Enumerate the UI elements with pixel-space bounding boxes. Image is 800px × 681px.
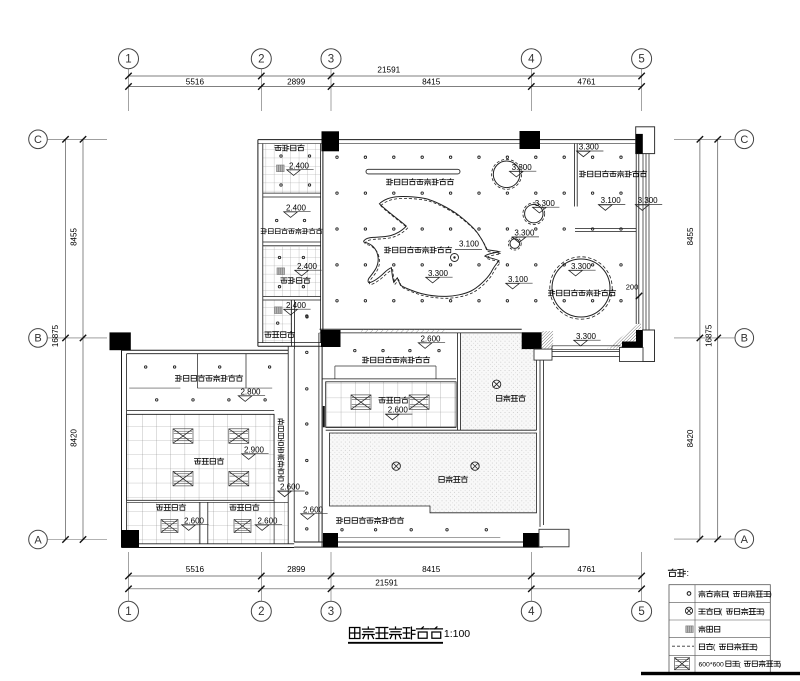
svg-text:4: 4 [528, 54, 535, 66]
svg-text:3.300: 3.300 [638, 196, 659, 205]
svg-text:2.400: 2.400 [289, 161, 310, 170]
svg-text:3.300: 3.300 [514, 229, 535, 238]
svg-text:1:100: 1:100 [444, 628, 470, 640]
svg-text:): ) [779, 661, 781, 668]
svg-text:8420: 8420 [70, 429, 79, 447]
svg-text:3.300: 3.300 [576, 332, 597, 341]
svg-text:4761: 4761 [577, 77, 596, 86]
svg-text:3.300: 3.300 [428, 269, 449, 278]
svg-text:8455: 8455 [686, 227, 695, 245]
svg-text:1: 1 [125, 606, 131, 618]
svg-text:): ) [762, 609, 764, 616]
svg-text:2.800: 2.800 [240, 387, 261, 396]
svg-text:2.600: 2.600 [420, 334, 441, 343]
svg-text:16875: 16875 [51, 324, 60, 347]
svg-text:4: 4 [528, 606, 535, 618]
svg-text:2.600: 2.600 [184, 516, 205, 525]
svg-text:5516: 5516 [186, 565, 205, 574]
svg-text:2.600: 2.600 [303, 505, 324, 514]
svg-text:8455: 8455 [70, 228, 79, 246]
svg-text:21591: 21591 [375, 579, 398, 588]
svg-text:600*600: 600*600 [699, 661, 725, 668]
svg-text:A: A [34, 534, 42, 546]
svg-text:2.600: 2.600 [280, 483, 301, 492]
svg-text:2.600: 2.600 [257, 516, 278, 525]
svg-text:2899: 2899 [287, 565, 306, 574]
svg-text:3.100: 3.100 [508, 275, 529, 284]
svg-text:B: B [34, 333, 41, 345]
svg-text:2: 2 [258, 54, 264, 66]
svg-text:2.400: 2.400 [286, 301, 307, 310]
svg-text:3: 3 [328, 606, 334, 618]
svg-text:1: 1 [125, 54, 131, 66]
svg-text:5516: 5516 [186, 77, 205, 86]
svg-text:2.900: 2.900 [244, 445, 265, 454]
svg-text:): ) [769, 592, 771, 599]
svg-text:3.300: 3.300 [535, 199, 556, 208]
svg-text:3.300: 3.300 [512, 163, 533, 172]
svg-text:5: 5 [638, 54, 644, 66]
svg-text::: : [687, 568, 690, 578]
svg-text:16875: 16875 [705, 324, 714, 347]
svg-text:3.100: 3.100 [459, 239, 480, 248]
svg-text:3.100: 3.100 [601, 196, 622, 205]
svg-text:3.300: 3.300 [579, 143, 600, 152]
svg-text:C: C [740, 134, 748, 146]
svg-text:2.400: 2.400 [297, 262, 318, 271]
svg-text:5: 5 [638, 606, 644, 618]
svg-text:B: B [741, 333, 748, 345]
svg-text:): ) [755, 644, 757, 651]
svg-text:2.400: 2.400 [286, 203, 307, 212]
svg-text:2899: 2899 [287, 77, 306, 86]
svg-text:8415: 8415 [422, 565, 441, 574]
svg-text:21591: 21591 [377, 66, 400, 75]
svg-text:3.300: 3.300 [571, 262, 592, 271]
svg-text:4761: 4761 [577, 565, 596, 574]
svg-text:8415: 8415 [422, 77, 441, 86]
svg-text:200: 200 [626, 283, 639, 292]
svg-text:2: 2 [258, 606, 264, 618]
svg-text:C: C [34, 134, 42, 146]
svg-text:8420: 8420 [686, 429, 695, 447]
svg-text:3: 3 [328, 54, 334, 66]
svg-text:2.600: 2.600 [388, 406, 409, 415]
svg-text:A: A [741, 534, 749, 546]
